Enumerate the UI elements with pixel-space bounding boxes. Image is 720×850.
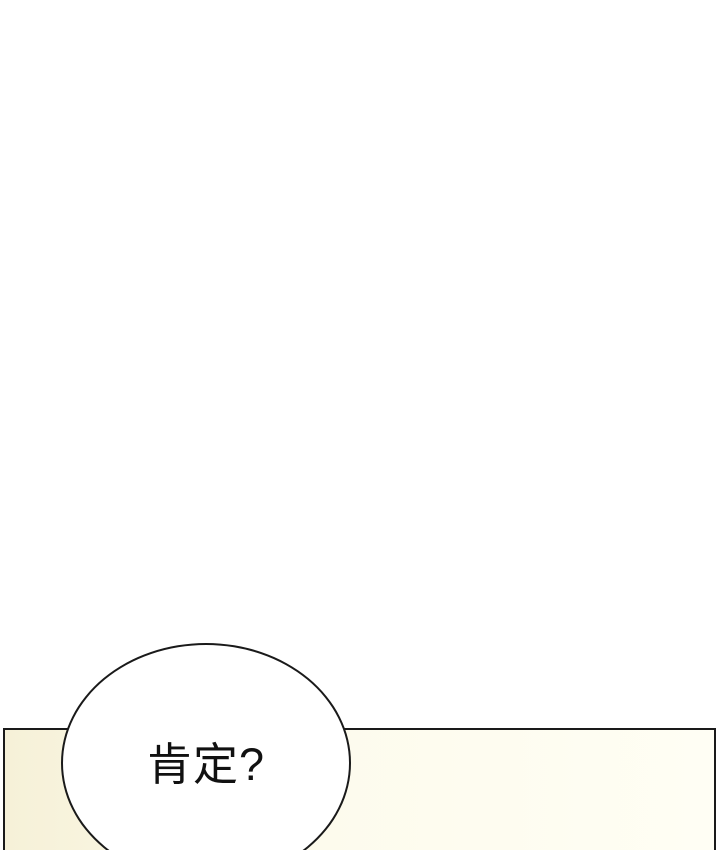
- speech-bubble-text: 肯定?: [61, 742, 351, 787]
- comic-page: 肯定?: [0, 0, 720, 850]
